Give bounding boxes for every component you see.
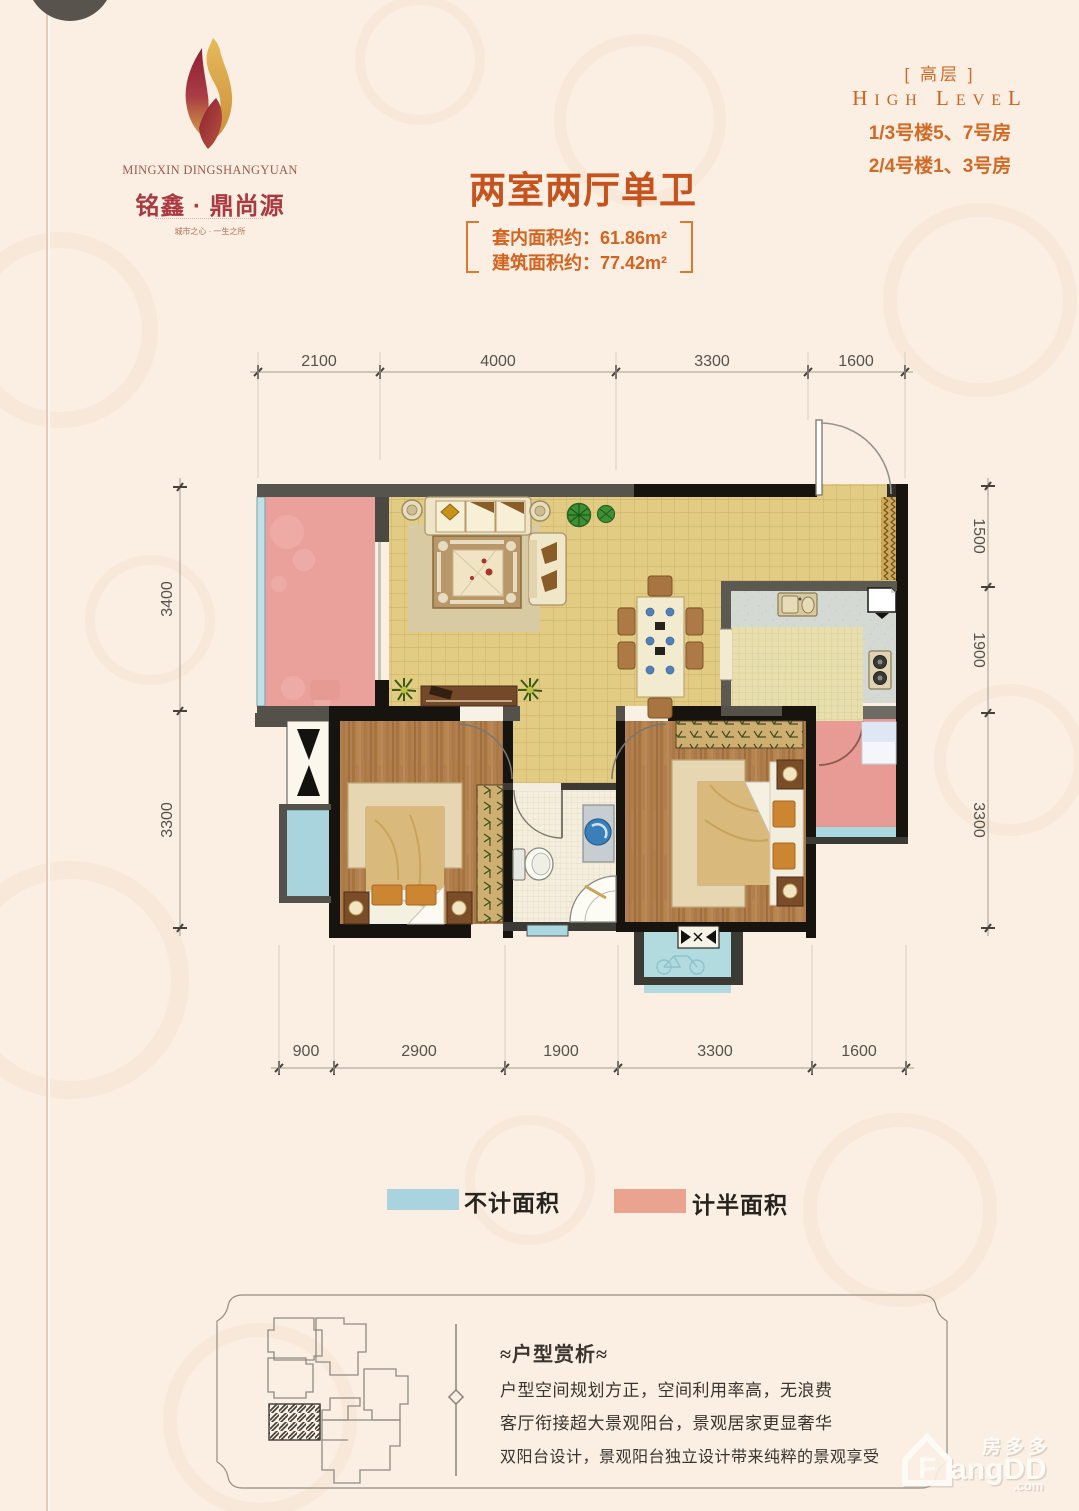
svg-text:4000: 4000 — [480, 353, 516, 370]
svg-text:1500: 1500 — [970, 518, 987, 554]
svg-text:1600: 1600 — [841, 1043, 877, 1060]
svg-text:2900: 2900 — [401, 1043, 437, 1060]
svg-text:3400: 3400 — [159, 581, 176, 617]
svg-text:900: 900 — [293, 1043, 320, 1060]
svg-text:F: F — [918, 1452, 936, 1485]
svg-text:3300: 3300 — [694, 353, 730, 370]
svg-text:3300: 3300 — [159, 802, 176, 838]
svg-text:3300: 3300 — [697, 1043, 733, 1060]
svg-text:.com: .com — [1013, 1478, 1043, 1493]
svg-text:1900: 1900 — [543, 1043, 579, 1060]
svg-text:1600: 1600 — [838, 353, 874, 370]
svg-text:3300: 3300 — [970, 802, 987, 838]
svg-text:1900: 1900 — [970, 632, 987, 668]
svg-text:2100: 2100 — [301, 353, 337, 370]
